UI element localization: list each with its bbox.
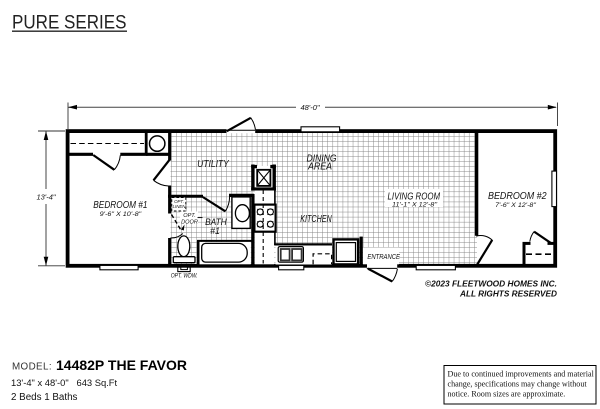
svg-text:PURE SERIES: PURE SERIES [12,12,127,34]
svg-text:7'-6" X 12'-8": 7'-6" X 12'-8" [495,202,537,209]
svg-text:DOOR: DOOR [181,219,198,225]
svg-text:LINEN: LINEN [173,204,187,209]
svg-text:ALL RIGHTS RESERVED: ALL RIGHTS RESERVED [459,289,557,299]
svg-text:change, specifications may cha: change, specifications may change withou… [448,380,588,389]
svg-text:BEDROOM #1: BEDROOM #1 [93,200,147,211]
svg-text:9'-6" X 10'-8": 9'-6" X 10'-8" [100,211,142,218]
svg-text:13'-4" x 48'-0" 643 Sq.Ft: 13'-4" x 48'-0" 643 Sq.Ft [11,377,118,388]
svg-text:2 Beds 1 Baths: 2 Beds 1 Baths [11,392,78,403]
svg-text:OPT.: OPT. [183,213,196,219]
svg-text:MODEL:: MODEL: [12,362,52,373]
svg-text:#1: #1 [210,226,220,236]
svg-text:Due to continued improvements: Due to continued improvements and materi… [448,370,595,379]
svg-text:UTILITY: UTILITY [197,158,229,170]
svg-text:BEDROOM #2: BEDROOM #2 [488,191,547,202]
svg-text:ENTRANCE: ENTRANCE [367,252,400,261]
svg-text:KITCHEN: KITCHEN [300,214,332,225]
svg-text:13'-4": 13'-4" [36,193,55,202]
svg-text:AREA: AREA [307,162,332,173]
svg-text:OPT. WDW.: OPT. WDW. [171,273,198,279]
svg-text:11'-1" X 12'-8": 11'-1" X 12'-8" [392,201,438,208]
svg-text:©2023 FLEETWOOD HOMES INC.: ©2023 FLEETWOOD HOMES INC. [425,279,557,289]
svg-text:14482P THE FAVOR: 14482P THE FAVOR [56,357,187,373]
svg-text:48'-0": 48'-0" [300,103,319,112]
svg-text:notice. Room sizes are approxi: notice. Room sizes are approximate. [448,390,566,399]
